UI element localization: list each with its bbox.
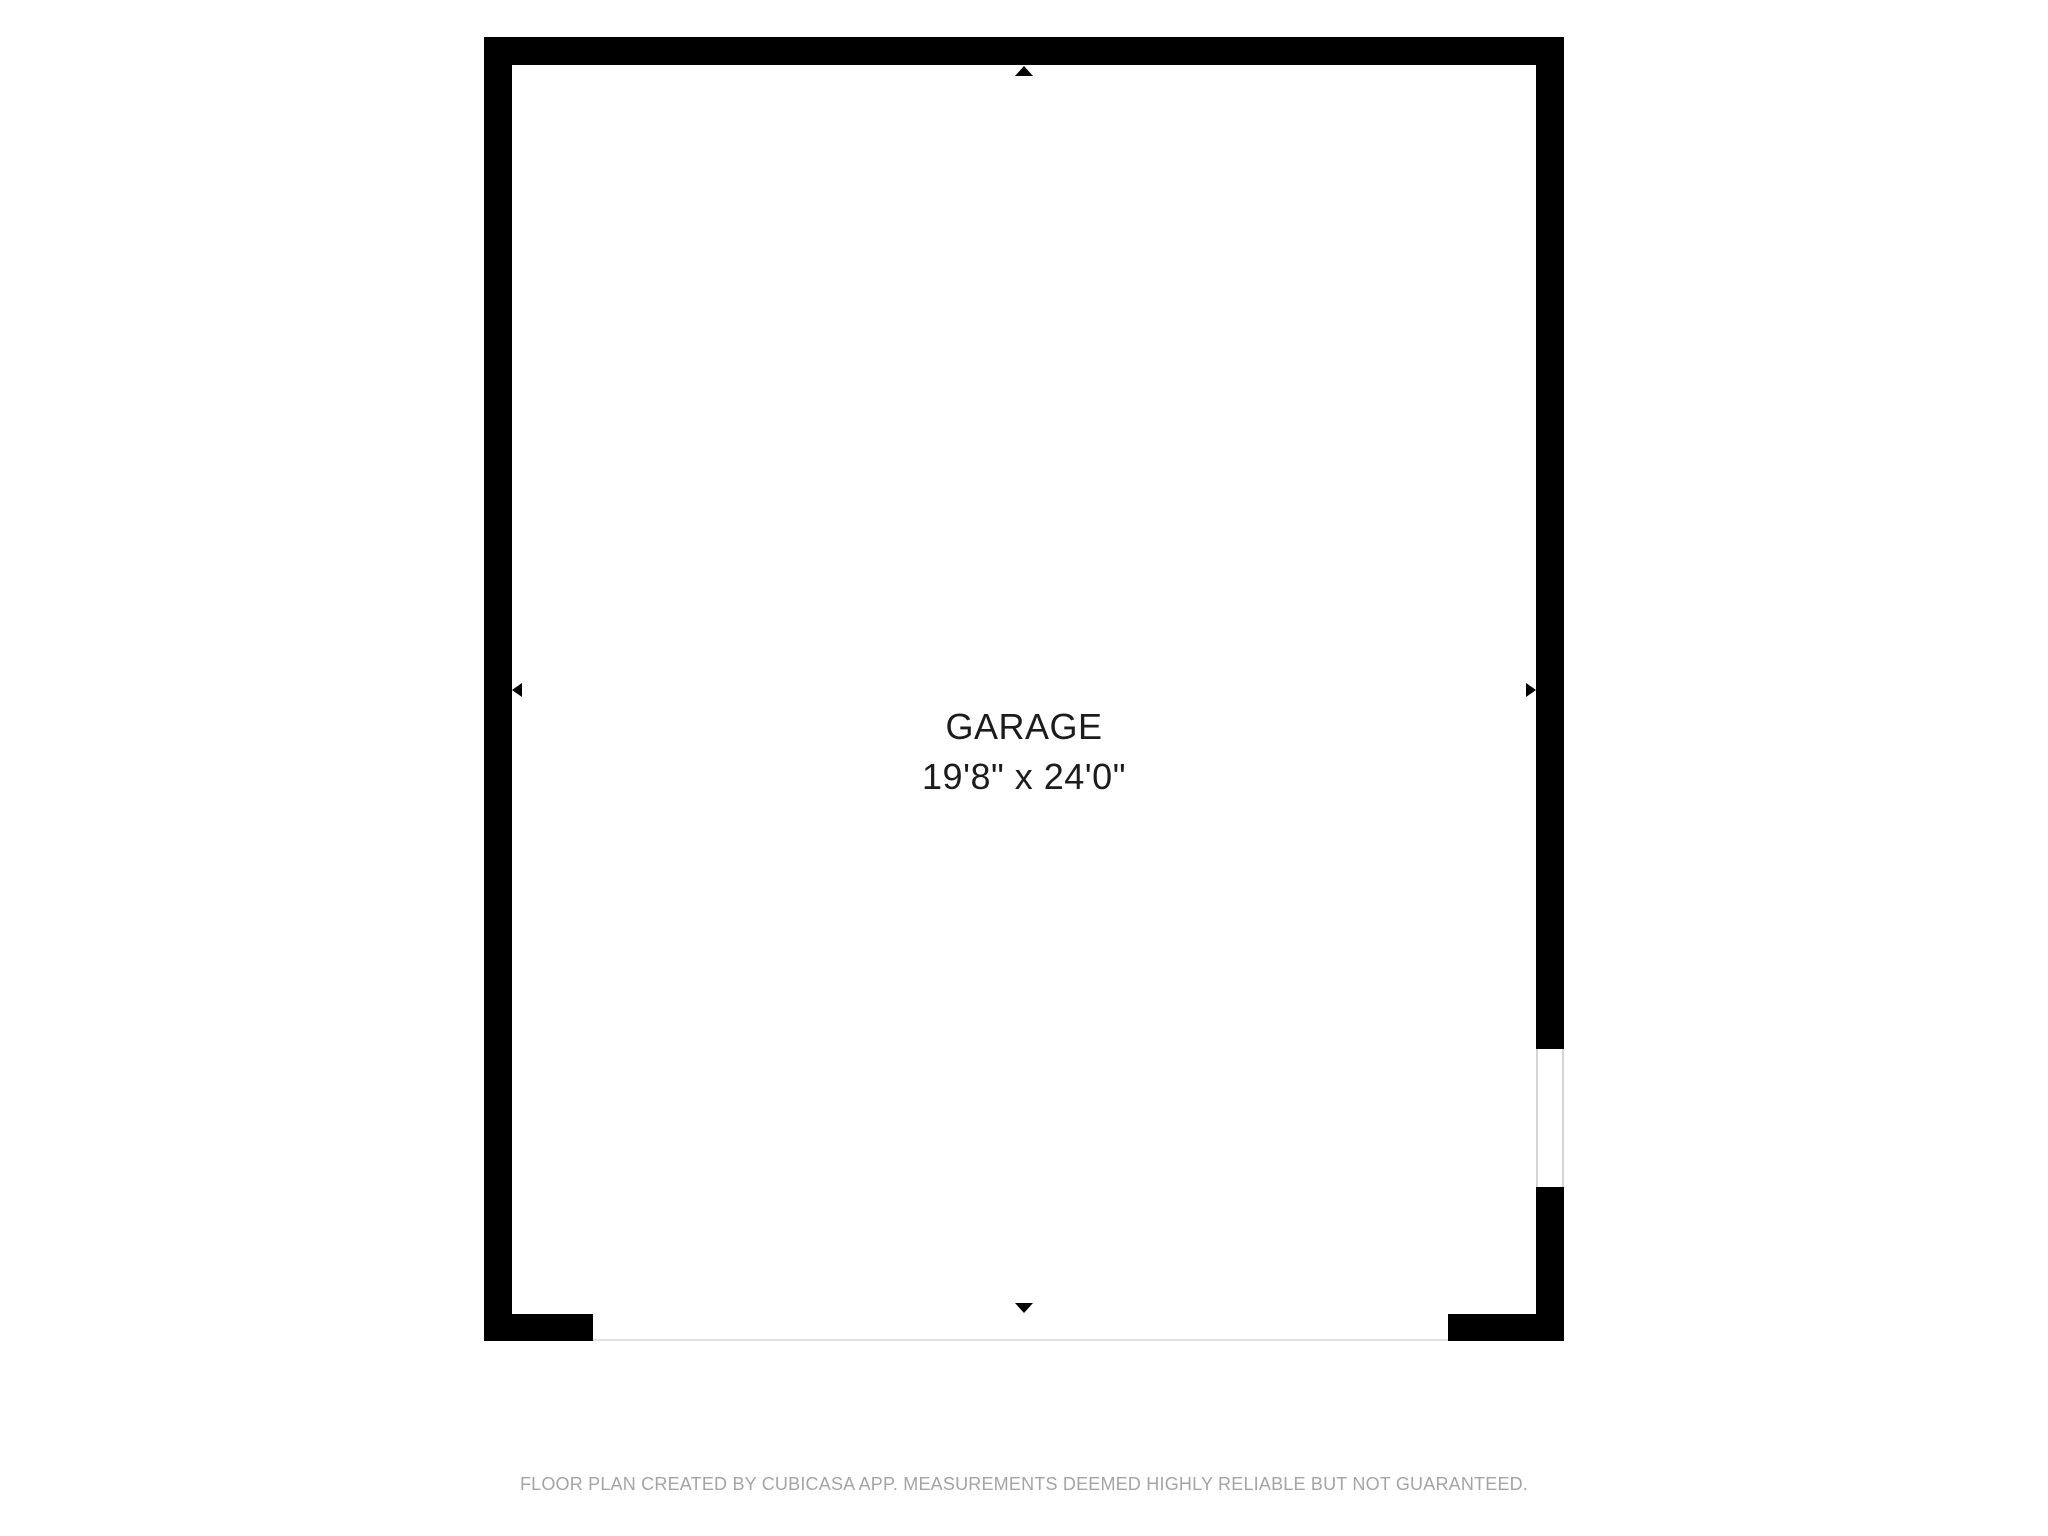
floor-plan-page: GARAGE 19'8" x 24'0" FLOOR PLAN CREATED … xyxy=(0,0,2048,1536)
room-name: GARAGE xyxy=(484,702,1564,752)
disclaimer-text: FLOOR PLAN CREATED BY CUBICASA APP. MEAS… xyxy=(0,1472,2048,1496)
wall-left xyxy=(484,37,512,1341)
room-dimensions: 19'8" x 24'0" xyxy=(484,752,1564,802)
wall-arrow-down-icon xyxy=(1015,1303,1033,1313)
floor-plan: GARAGE 19'8" x 24'0" xyxy=(484,37,1564,1341)
window-right-wall xyxy=(1536,1049,1564,1187)
wall-top xyxy=(484,37,1564,65)
wall-arrow-up-icon xyxy=(1015,66,1033,76)
wall-arrow-right-icon xyxy=(1526,683,1536,697)
garage-door-opening-line xyxy=(593,1339,1448,1341)
wall-bottom-right xyxy=(1448,1314,1564,1341)
wall-arrow-left-icon xyxy=(512,683,522,697)
room-label: GARAGE 19'8" x 24'0" xyxy=(484,702,1564,802)
wall-bottom-left xyxy=(484,1314,593,1341)
wall-right-upper xyxy=(1536,37,1564,1049)
